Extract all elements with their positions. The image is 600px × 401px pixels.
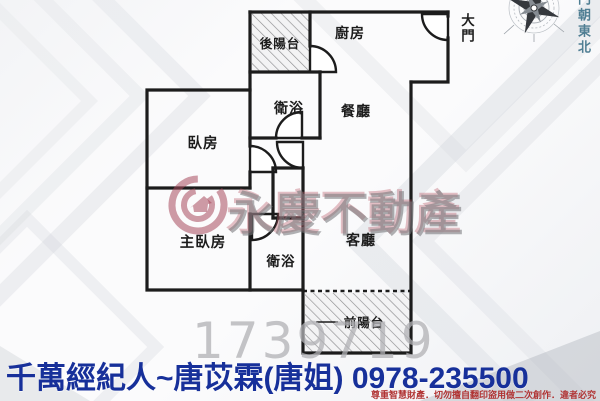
hallway-door-arc bbox=[277, 142, 303, 168]
orientation-facing-label: 門朝東北 bbox=[574, 0, 593, 56]
room-label-kitchen: 廚房 bbox=[335, 25, 365, 42]
room-label-back-balcony: 後陽台 bbox=[260, 36, 301, 51]
back-balcony-door-arc bbox=[310, 46, 336, 72]
room-label-bedroom: 臥房 bbox=[188, 134, 219, 152]
room-label-bath-upper: 衛浴 bbox=[273, 100, 304, 117]
listing-floorplan-image: 後陽台 廚房 衛浴 餐廳 臥房 主臥房 衛浴 客廳 前陽台 大門 bbox=[0, 0, 600, 401]
main-entry-door-arc bbox=[422, 14, 448, 40]
brand-watermark-text: 永慶不動產 bbox=[228, 176, 463, 245]
copyright-disclaimer: 尊重智慧財產．切勿擅自翻印盜用做二次創作．違者必究 bbox=[371, 387, 596, 401]
room-label-bath-lower: 衛浴 bbox=[266, 253, 296, 269]
main-door-label: 大門 bbox=[456, 13, 476, 44]
compass-icon bbox=[499, 0, 568, 43]
room-label-dining: 餐廳 bbox=[340, 103, 371, 120]
